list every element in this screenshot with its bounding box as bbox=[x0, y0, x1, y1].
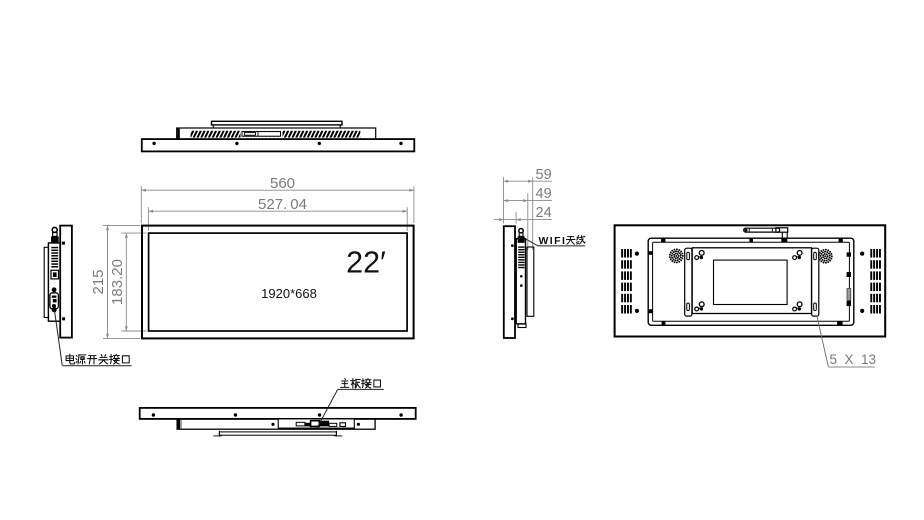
svg-text:59: 59 bbox=[536, 167, 552, 183]
svg-text:49: 49 bbox=[536, 186, 552, 202]
svg-text:183.20: 183.20 bbox=[109, 259, 126, 305]
svg-text:527. 04: 527. 04 bbox=[258, 196, 307, 213]
svg-text:5 X 13: 5 X 13 bbox=[830, 352, 877, 367]
svg-text:560: 560 bbox=[270, 175, 295, 192]
svg-text:24: 24 bbox=[536, 205, 552, 221]
svg-text:215: 215 bbox=[90, 269, 107, 294]
svg-text:22′: 22′ bbox=[346, 246, 386, 280]
svg-text:1920*668: 1920*668 bbox=[261, 286, 317, 301]
